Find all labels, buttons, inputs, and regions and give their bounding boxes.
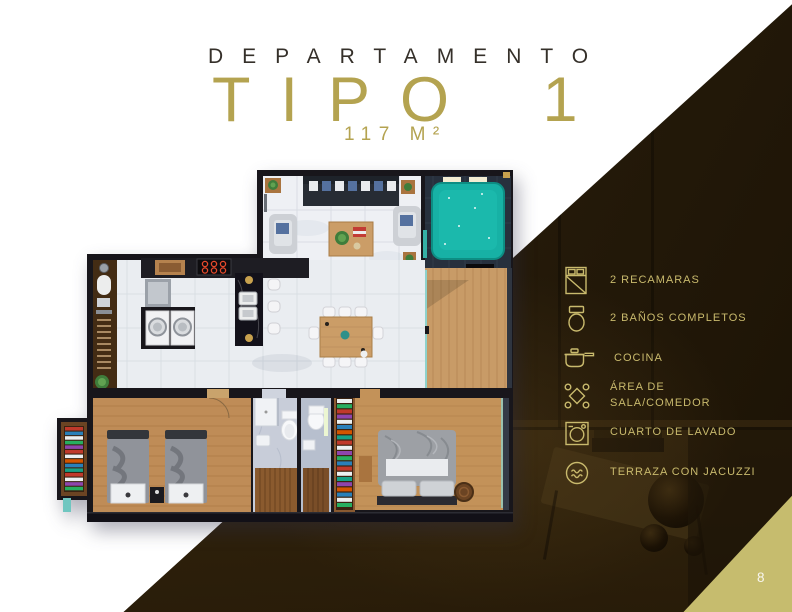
bedroom-1 — [93, 396, 251, 514]
sofa-pillows — [309, 181, 396, 191]
kitchen-dining — [93, 258, 425, 394]
cookware-icon — [562, 344, 596, 374]
amenity-label: COCINA — [614, 351, 663, 367]
jacuzzi-icon — [562, 458, 592, 488]
amenity-row: CUARTO DE LAVADO — [562, 418, 736, 448]
page-number: 8 — [746, 570, 776, 585]
bedroom-2 — [355, 396, 509, 510]
amenity-row: 2 RECAMARAS — [562, 266, 700, 296]
bathrooms — [253, 394, 334, 514]
amenity-label: 2 BAÑOS COMPLETOS — [610, 311, 747, 327]
toilet-icon — [562, 304, 592, 334]
clothes-stripes — [337, 399, 352, 507]
amenity-label: 2 RECAMARAS — [610, 273, 700, 289]
single-bed — [107, 430, 149, 503]
amenity-row: ÁREA DE SALA/COMEDOR — [562, 380, 728, 412]
amenity-label: ÁREA DE SALA/COMEDOR — [610, 380, 728, 412]
amenity-row: COCINA — [562, 344, 663, 374]
amenity-row: TERRAZA CON JACUZZI — [562, 458, 756, 488]
brochure-page: 8 — [0, 0, 792, 612]
jacuzzi — [423, 172, 511, 279]
unit-area: 117 M² — [344, 124, 447, 146]
amenity-label: CUARTO DE LAVADO — [610, 425, 736, 441]
living-room — [263, 176, 421, 268]
dining-table-icon — [562, 381, 592, 411]
bed-icon — [562, 266, 592, 296]
terrace — [423, 268, 512, 396]
washing-machine-icon — [562, 418, 592, 448]
wardrobe-right — [334, 394, 355, 514]
floor-plan-image — [57, 168, 527, 523]
amenity-label: TERRAZA CON JACUZZI — [610, 465, 756, 481]
single-bed — [165, 430, 207, 503]
amenity-row: 2 BAÑOS COMPLETOS — [562, 304, 747, 334]
